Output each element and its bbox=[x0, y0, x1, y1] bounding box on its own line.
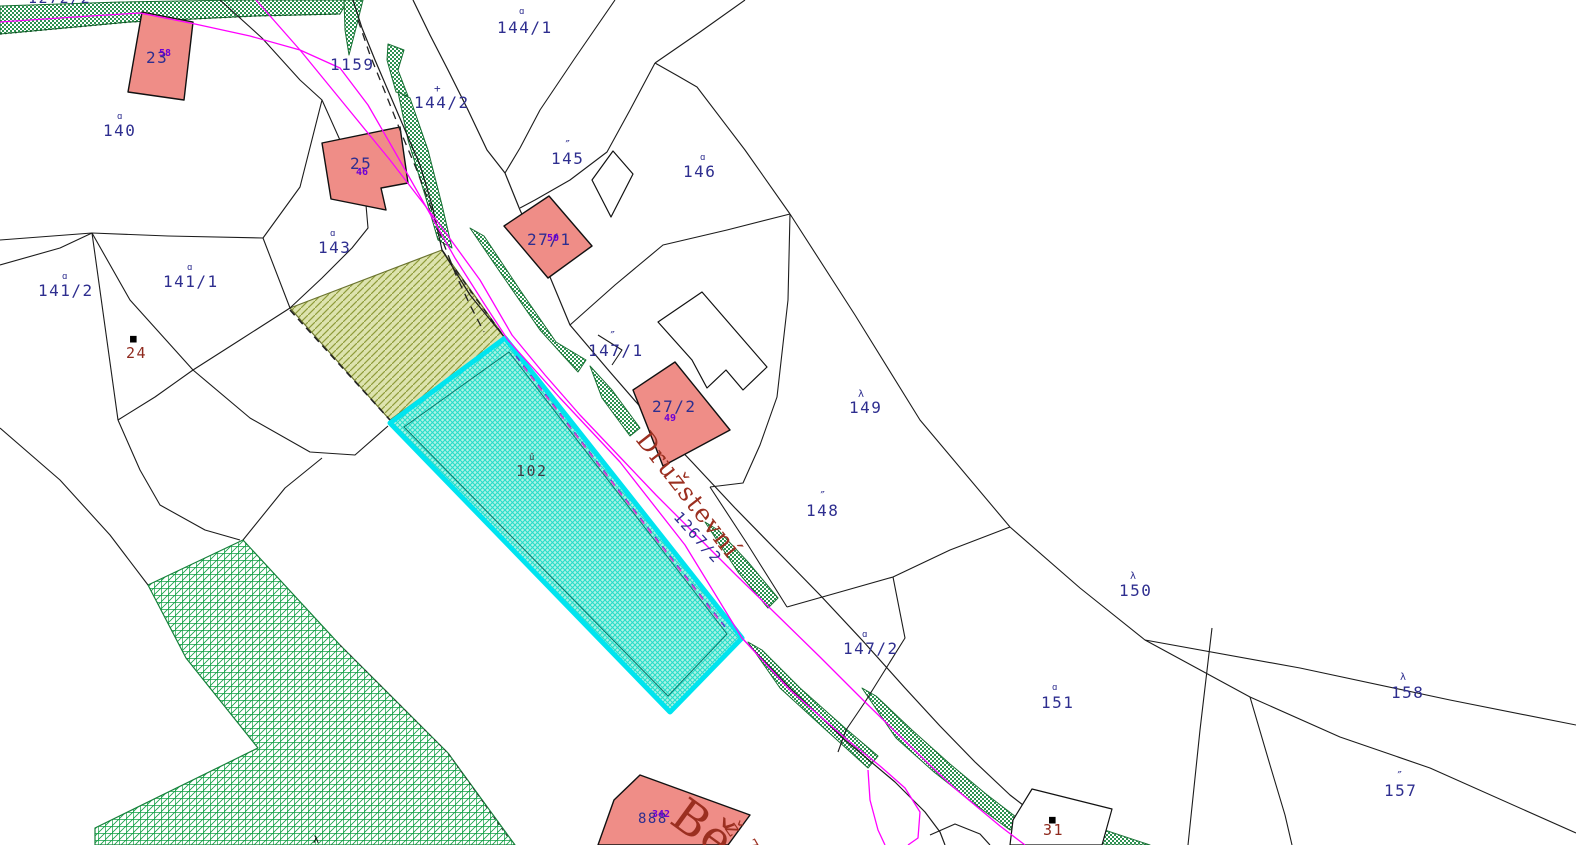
landuse-symbol--: λ bbox=[1130, 571, 1136, 582]
parcel-label-148: 148 bbox=[806, 501, 839, 520]
landuse-symbol--: ■ bbox=[1049, 813, 1056, 826]
parcel-label-140: 140 bbox=[103, 121, 136, 140]
boundary-left-edge bbox=[0, 428, 148, 585]
boundary-149-east bbox=[790, 214, 1010, 527]
parcel-label-151: 151 bbox=[1041, 693, 1074, 712]
boundary-141-mid bbox=[193, 308, 290, 370]
building-outline-145[interactable] bbox=[592, 151, 633, 217]
building-number-46: 46 bbox=[356, 167, 368, 178]
landuse-symbol--: ɑ bbox=[62, 272, 67, 282]
parcel-label-7: 7 bbox=[741, 836, 763, 845]
landuse-symbol--: λ bbox=[313, 835, 319, 845]
landuse-symbol--: ɑ bbox=[862, 630, 867, 640]
roadside-green-7 bbox=[862, 688, 1020, 830]
boundary-157-inner bbox=[1250, 697, 1292, 845]
boundary-151-north bbox=[893, 527, 1010, 577]
parcel-label-147-1: 147/1 bbox=[588, 341, 644, 360]
magenta-line-west-branch bbox=[868, 770, 885, 845]
parcel-label-1272-2: 1272/2 bbox=[28, 0, 91, 7]
parcel-label-143: 143 bbox=[318, 238, 351, 257]
landuse-symbol--: ″ bbox=[609, 329, 616, 343]
boundary-143-west bbox=[263, 100, 322, 238]
boundary-157-west bbox=[1188, 628, 1212, 845]
landuse-symbol--: λ bbox=[858, 389, 864, 400]
parcel-label-141-2: 141/2 bbox=[38, 281, 94, 300]
boundary-158-north bbox=[1145, 640, 1576, 725]
building-number-50: 50 bbox=[547, 233, 559, 244]
landuse-symbol--: ″ bbox=[1396, 769, 1403, 783]
landuse-symbol--: ɑ bbox=[330, 229, 335, 239]
building-number-58: 58 bbox=[159, 48, 171, 59]
roadside-green-1 bbox=[387, 44, 408, 96]
boundary-146-north bbox=[655, 0, 745, 63]
building-number-49: 49 bbox=[664, 413, 676, 424]
boundary-141-2 bbox=[0, 233, 92, 265]
landuse-symbol--: ɑ bbox=[1052, 683, 1057, 693]
boundary-145-east bbox=[520, 63, 655, 208]
parcel-label-144-2: 144/2 bbox=[414, 93, 470, 112]
building-number-342: 342 bbox=[652, 809, 670, 820]
landuse-symbol--: ɑ bbox=[117, 112, 122, 122]
parcel-label-150: 150 bbox=[1119, 581, 1152, 600]
landuse-symbol--: λ bbox=[1400, 672, 1406, 683]
boundary-148-east bbox=[787, 577, 893, 607]
parcel-label-146: 146 bbox=[683, 162, 716, 181]
landuse-symbol--: ɑ bbox=[187, 263, 192, 273]
landuse-symbol--: + bbox=[434, 82, 441, 95]
landuse-symbol--: ″ bbox=[819, 489, 826, 503]
boundary-24-south bbox=[118, 370, 193, 420]
landuse-symbol--: ɑ bbox=[700, 153, 705, 163]
landuse-symbol--: ű bbox=[529, 453, 534, 463]
boundary-150-151 bbox=[1010, 527, 1576, 833]
map-canvas[interactable]: 1272/2231401159144/1144/225143141/2141/1… bbox=[0, 0, 1576, 845]
landuse-symbol--: ″ bbox=[564, 138, 571, 152]
boundary-24-west bbox=[92, 233, 118, 420]
landuse-symbol--: ɑ bbox=[519, 7, 524, 17]
parcel-label-149: 149 bbox=[849, 398, 882, 417]
parcel-label-147-2: 147/2 bbox=[843, 639, 899, 658]
parcel-label-141-1: 141/1 bbox=[163, 272, 219, 291]
parcel-label-144-1: 144/1 bbox=[497, 18, 553, 37]
boundary-146-east bbox=[655, 63, 790, 214]
boundary-southwest-3 bbox=[243, 458, 322, 540]
parcel-label-24: 24 bbox=[126, 344, 147, 362]
road-bottom-structure bbox=[930, 824, 990, 845]
cadastral-map[interactable]: 1272/2231401159144/1144/225143141/2141/1… bbox=[0, 0, 1576, 845]
landuse-symbol--: ■ bbox=[130, 332, 137, 345]
boundary-southwest-1 bbox=[118, 420, 240, 540]
parcel-label-158: 158 bbox=[1391, 683, 1424, 702]
roadside-green-4 bbox=[590, 366, 640, 436]
forest-parcel[interactable] bbox=[95, 540, 515, 845]
parcel-label-102: 102 bbox=[516, 462, 548, 480]
parcel-label-1159: 1159 bbox=[330, 55, 375, 74]
parcel-label-157: 157 bbox=[1384, 781, 1417, 800]
